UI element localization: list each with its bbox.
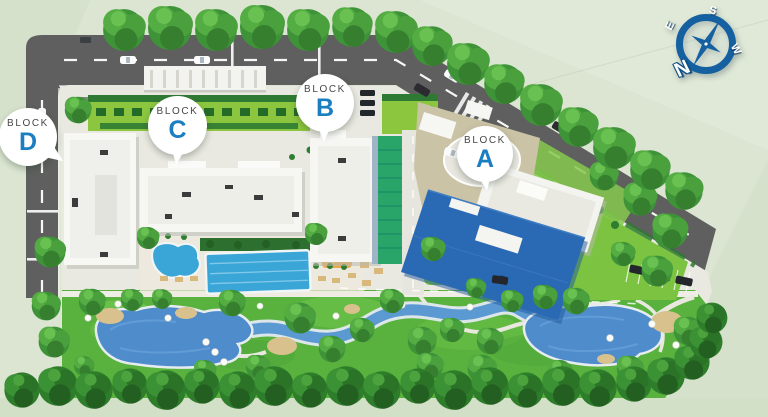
block-label-a[interactable]: BLOCK A — [457, 126, 513, 182]
block-label-b-pointer — [314, 120, 333, 152]
site-plan-graphic — [0, 0, 768, 417]
block-label-b-letter: B — [316, 95, 334, 121]
compass: S E W N — [666, 8, 746, 88]
block-label-d-letter: D — [19, 129, 37, 155]
building-block-c[interactable] — [140, 161, 305, 236]
block-label-b[interactable]: BLOCK B — [296, 74, 354, 132]
block-label-c[interactable]: BLOCK C — [148, 96, 207, 155]
block-label-c-letter: C — [168, 117, 186, 143]
building-block-d[interactable] — [64, 133, 139, 269]
block-label-c-pointer — [166, 142, 187, 175]
block-label-d[interactable]: BLOCK D — [0, 108, 57, 166]
site-plan: BLOCK D BLOCK C BLOCK B BLOCK A S E W N — [0, 0, 768, 417]
